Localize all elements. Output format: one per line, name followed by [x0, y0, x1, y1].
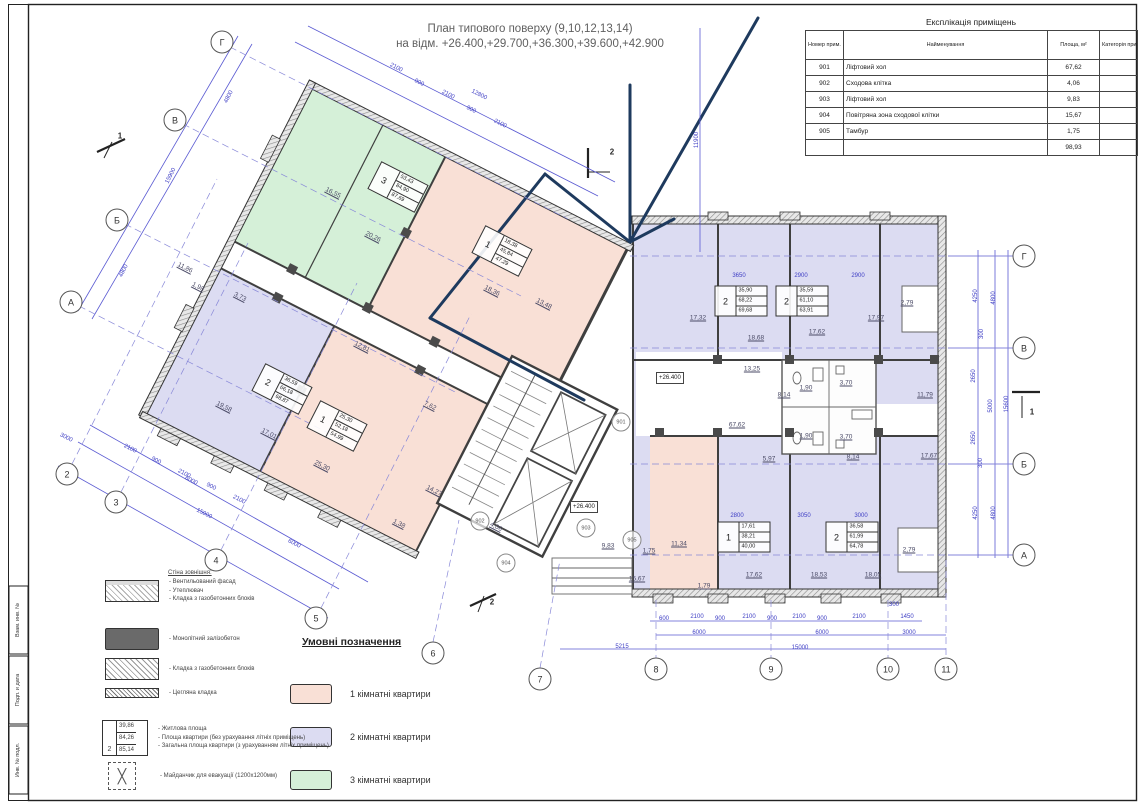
room-area-label: 17,97	[868, 315, 884, 322]
apartment-table: 353,4384,9087,69	[367, 161, 428, 213]
room-area-label: 5,97	[763, 456, 776, 463]
axis-bubble: 9	[760, 658, 783, 681]
room-area-label: 4,06	[489, 521, 503, 533]
stamp-text: Подп. и дата	[15, 674, 21, 706]
room-area-label: 11,79	[917, 392, 933, 399]
room-area-label: 17,67	[921, 453, 937, 460]
dimension-label: 4250	[973, 506, 979, 519]
room-number-bubble: 902	[471, 512, 490, 531]
dimension-label: 4800	[118, 264, 129, 279]
dimension-label: 900	[715, 616, 725, 622]
dimension-label: 900	[767, 616, 777, 622]
wall-legend-item: - Кладка з газобетонних блоків	[105, 658, 254, 680]
dimension-label: 2100	[123, 443, 138, 454]
room-area-label: 17,01	[260, 427, 278, 441]
axis-bubble: В	[164, 109, 187, 132]
room-area-label: 67,62	[729, 422, 745, 429]
wall-legend-line: - Утеплювач	[169, 587, 254, 596]
apartment-values: 17,6138,2140,00	[740, 523, 770, 552]
apartment-area-value: 40,00	[740, 543, 770, 552]
dimension-label: 900	[465, 105, 477, 115]
dimension-label: 4800	[991, 506, 997, 519]
room-area-label: 20,26	[364, 230, 382, 244]
axis-bubble: Г	[1013, 245, 1036, 268]
wall-legend-item: - Монолітний залізобетон	[105, 628, 240, 650]
axis-bubble: 4	[205, 549, 228, 572]
apartment-values: 35,5961,1063,91	[798, 287, 828, 316]
apartment-table: 235,5961,1063,91	[776, 286, 829, 317]
wall-legend-line: - Вентильований фасад	[169, 578, 254, 587]
dimension-label: 2100	[792, 614, 805, 620]
blocks-swatch	[105, 658, 159, 680]
room-area-label: 12,81	[353, 340, 371, 354]
dimension-label: 600	[659, 616, 669, 622]
stamp-text: Инв. № подл.	[15, 743, 21, 777]
area-sample-line: - Загальна площа квартири (з урахуванням…	[158, 742, 329, 751]
dimension-label: 12800	[470, 89, 488, 102]
dimension-label: 6000	[815, 630, 828, 636]
room-number-bubble: 901	[612, 413, 631, 432]
room-area-label: 18,36	[483, 284, 501, 298]
room-area-label: 13,48	[535, 297, 553, 311]
legend-swatch	[290, 684, 332, 704]
dimension-label: 300	[979, 329, 985, 339]
room-area-label: 17,62	[746, 572, 762, 579]
dimension-label: 15000	[195, 508, 213, 521]
section-number: 2	[490, 598, 494, 607]
room-area-label: 1,75	[643, 548, 656, 555]
room-number-bubble: 905	[623, 531, 642, 550]
apartment-type: 2	[716, 287, 737, 316]
dimension-label: 900	[413, 78, 425, 88]
dimension-label: 6000	[184, 475, 199, 486]
apartment-type: 1	[719, 523, 740, 552]
apartment-values: 36,5861,9964,78	[848, 523, 878, 552]
dimension-label: 300	[889, 602, 899, 608]
area-sample-text: - Житлова площа- Площа квартири (без ура…	[158, 725, 329, 751]
apartment-type: 2	[777, 287, 798, 316]
room-area-label: 1,98	[191, 281, 205, 293]
dimension-label: 2900	[794, 273, 807, 279]
area-sample-line: - Площа квартири (без урахування літніх …	[158, 734, 329, 743]
room-area-label: 16,55	[324, 186, 342, 200]
room-area-label: 3,73	[233, 291, 247, 303]
apartment-area-value: 69,68	[737, 307, 767, 316]
room-area-label: 9,83	[602, 543, 615, 550]
axis-bubble: 11	[935, 658, 958, 681]
room-number-bubble: 903	[577, 519, 596, 538]
room-area-label: 1,38	[392, 518, 406, 530]
axis-bubble: Б	[1013, 453, 1036, 476]
stamp-strip-label: Инв. № подл.	[9, 726, 27, 794]
dimension-label: 5215	[615, 644, 628, 650]
dimension-label: 2800	[730, 513, 743, 519]
room-area-label: 25,30	[313, 459, 331, 473]
axis-bubble: Г	[211, 31, 234, 54]
apartment-table: 236,5861,9964,78	[826, 522, 879, 553]
dimension-label: 3000	[854, 513, 867, 519]
room-area-label: 3,70	[840, 380, 853, 387]
area-sample-type: 2	[103, 721, 117, 755]
dimension-label: 3000	[59, 432, 74, 443]
apartment-table: 117,6138,2140,00	[718, 522, 771, 553]
section-number: 1	[118, 132, 122, 141]
evacuation-label-line: - Майданчик для евакуації (1200х1200мм)	[160, 772, 277, 781]
area-sample-value: 84,26	[117, 733, 136, 745]
dimension-label: 1450	[900, 614, 913, 620]
room-area-label: 8,14	[847, 454, 860, 461]
room-area-label: 8,14	[778, 392, 791, 399]
apartment-area-value: 64,78	[848, 543, 878, 552]
room-area-label: 7,62	[423, 400, 437, 412]
dimension-label: 900	[817, 616, 827, 622]
apartment-area-value: 35,59	[798, 287, 828, 297]
stamp-text: Взам. инв. №	[15, 603, 21, 637]
dimension-label: 4250	[973, 289, 979, 302]
dimension-label: 2100	[742, 614, 755, 620]
dimension-label: 300	[978, 458, 984, 468]
area-sample-value: 39,86	[117, 721, 136, 733]
evacuation-item: ╳- Майданчик для евакуації (1200х1200мм)	[102, 762, 277, 790]
dimension-label: 3000	[902, 630, 915, 636]
section-number: 1	[1030, 408, 1034, 417]
apartment-area-value: 17,61	[740, 523, 770, 533]
apartment-type: 2	[827, 523, 848, 552]
dimension-label: 900	[205, 482, 217, 492]
room-area-label: 1,79	[698, 583, 711, 590]
dimension-label: 6000	[692, 630, 705, 636]
axis-bubble: 5	[305, 607, 328, 630]
area-sample-values: 39,8684,2685,14	[117, 721, 136, 755]
legend-item-label: 3 кімнатні квартири	[350, 775, 510, 786]
room-area-label: 3,70	[840, 434, 853, 441]
axis-bubble: А	[60, 291, 83, 314]
room-area-label: 1,90	[800, 385, 813, 392]
axis-bubble: 8	[645, 658, 668, 681]
legend-item-label: 1 кімнатні квартири	[350, 689, 510, 700]
room-area-label: 13,25	[744, 366, 760, 373]
facade-swatch	[105, 580, 159, 602]
plan-labels: 16,5520,2618,3613,4811,861,983,7312,8119…	[0, 0, 1143, 807]
room-area-label: 1,90	[800, 433, 813, 440]
dimension-label: 4800	[223, 90, 234, 105]
area-sample-line: - Житлова площа	[158, 725, 329, 734]
apartment-values: 35,9068,2269,68	[737, 287, 767, 316]
room-area-label: 18,05	[865, 572, 881, 579]
brick-swatch	[105, 688, 159, 698]
dimension-label: 2100	[441, 89, 456, 100]
room-number-bubble: 904	[497, 554, 516, 573]
axis-bubble: Б	[106, 209, 129, 232]
room-area-label: 17,32	[690, 315, 706, 322]
room-area-label: 18,53	[811, 572, 827, 579]
axis-bubble: 2	[56, 463, 79, 486]
apartment-area-value: 35,90	[737, 287, 767, 297]
dimension-label: 2100	[232, 494, 247, 505]
area-sample-value: 85,14	[117, 745, 136, 756]
apartment-area-value: 61,99	[848, 533, 878, 543]
elevation-mark: +26.400	[570, 501, 598, 513]
axis-bubble: 10	[877, 658, 900, 681]
dimension-label: 15900	[165, 167, 178, 185]
apartment-area-value: 38,21	[740, 533, 770, 543]
apartment-area-value: 68,22	[737, 297, 767, 307]
wall-legend-line: - Монолітний залізобетон	[169, 635, 240, 644]
wall-legend-text: - Вентильований фасад- Утеплювач- Кладка…	[169, 578, 254, 604]
axis-bubble: 3	[105, 491, 128, 514]
dimension-label: 2900	[851, 273, 864, 279]
section-number: 2	[610, 148, 614, 157]
wall-legend-text: - Кладка з газобетонних блоків	[169, 665, 254, 674]
dimension-label: 6000	[287, 538, 302, 549]
dimension-label: 5000	[988, 399, 994, 412]
legend-title: Умовні позначення	[302, 636, 520, 648]
room-area-label: 18,68	[748, 335, 764, 342]
elevation-mark: +26.400	[656, 372, 684, 384]
axis-bubble: В	[1013, 337, 1036, 360]
apartment-table: 235,9068,2269,68	[715, 286, 768, 317]
legend-item: 1 кімнатні квартири	[290, 684, 510, 704]
legend-item: 3 кімнатні квартири	[290, 770, 510, 790]
dimension-label: 15600	[1004, 396, 1010, 413]
apartment-area-value: 36,58	[848, 523, 878, 533]
dimension-label: 11900	[694, 132, 700, 148]
axis-bubble: 7	[529, 668, 552, 691]
wall-legend-title: Стіна зовнішня:	[168, 570, 212, 576]
room-area-label: 14,27	[425, 484, 443, 498]
apartment-table: 125,3052,1854,99	[306, 400, 367, 452]
wall-legend-text: - Монолітний залізобетон	[169, 635, 240, 644]
dimension-label: 2100	[690, 614, 703, 620]
stamp-strip-label: Подп. и дата	[9, 656, 27, 724]
room-area-label: 17,62	[809, 329, 825, 336]
dimension-label: 4800	[991, 291, 997, 304]
dimension-label: 15000	[792, 645, 809, 651]
wall-legend-text: - Цегляна кладка	[169, 689, 217, 698]
wall-legend-line: - Кладка з газобетонних блоків	[169, 595, 254, 604]
room-area-label: 11,34	[671, 541, 687, 548]
room-area-label: 2,79	[901, 300, 914, 307]
area-sample-item: 239,8684,2685,14- Житлова площа- Площа к…	[102, 720, 329, 756]
wall-legend-line: - Цегляна кладка	[169, 689, 217, 698]
wall-legend-item: - Вентильований фасад- Утеплювач- Кладка…	[105, 578, 254, 604]
wall-legend-line: - Кладка з газобетонних блоків	[169, 665, 254, 674]
dimension-label: 2100	[493, 118, 508, 129]
apartment-table: 236,5966,1868,87	[251, 363, 312, 415]
apartment-area-value: 61,10	[798, 297, 828, 307]
drawing-sheet: План типового поверху (9,10,12,13,14) на…	[0, 0, 1143, 807]
room-area-label: 2,79	[903, 547, 916, 554]
dimension-label: 3650	[732, 273, 745, 279]
legend-swatch	[290, 770, 332, 790]
wall-legend-item: - Цегляна кладка	[105, 688, 217, 698]
legend-item-label: 2 кімнатні квартири	[350, 732, 510, 743]
axis-bubble: А	[1013, 544, 1036, 567]
room-area-label: 11,86	[176, 261, 193, 274]
dimension-label: 2100	[852, 614, 865, 620]
evacuation-label: - Майданчик для евакуації (1200х1200мм)	[160, 772, 277, 781]
dimension-label: 3050	[797, 513, 810, 519]
room-area-label: 15,67	[629, 576, 645, 583]
dimension-label: 2100	[389, 62, 404, 73]
dimension-label: 2650	[971, 431, 977, 444]
room-area-label: 19,58	[215, 400, 233, 414]
dimension-label: 2650	[971, 369, 977, 382]
stamp-strip-label: Взам. инв. №	[9, 586, 27, 654]
area-sample-box: 239,8684,2685,14	[102, 720, 148, 756]
concrete-swatch	[105, 628, 159, 650]
apartment-table: 118,3845,8447,29	[471, 225, 532, 277]
dimension-label: 900	[150, 456, 162, 466]
apartment-area-value: 63,91	[798, 307, 828, 316]
evacuation-pad-symbol: ╳	[108, 762, 136, 790]
